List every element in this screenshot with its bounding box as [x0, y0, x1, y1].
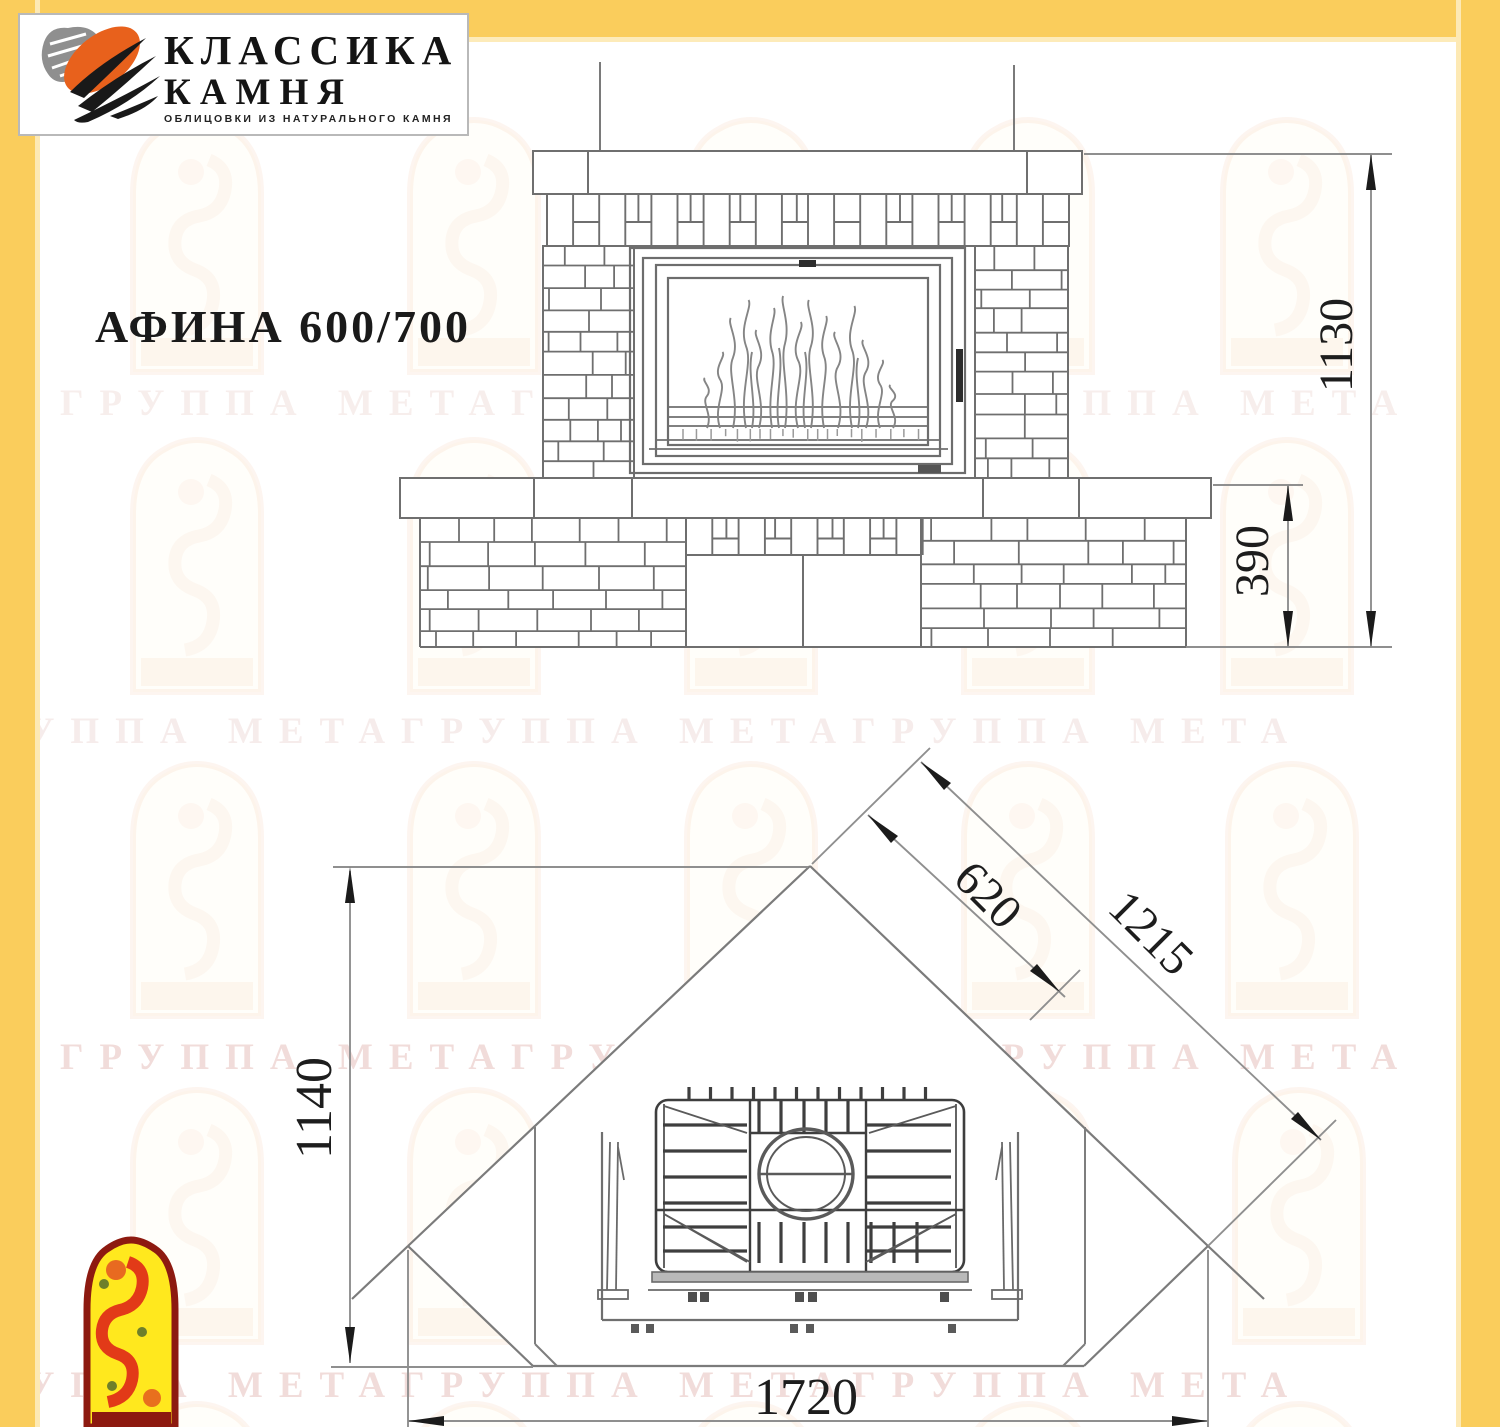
svg-text:КЛАССИКА: КЛАССИКА — [164, 27, 458, 73]
svg-text:1140: 1140 — [286, 1057, 343, 1159]
svg-text:АФИНА 600/700: АФИНА 600/700 — [95, 301, 471, 352]
svg-text:КАМНЯ: КАМНЯ — [164, 72, 353, 113]
svg-text:1720: 1720 — [754, 1369, 858, 1426]
svg-text:ГРУППА МЕТАГРУППА МЕТАГРУППА М: ГРУППА МЕТАГРУППА МЕТАГРУППА МЕТА — [0, 1365, 1303, 1406]
svg-text:390: 390 — [1226, 525, 1279, 597]
svg-text:1130: 1130 — [1310, 298, 1363, 392]
svg-text:ОБЛИЦОВКИ ИЗ НАТУРАЛЬНОГО КАМН: ОБЛИЦОВКИ ИЗ НАТУРАЛЬНОГО КАМНЯ — [164, 113, 453, 125]
svg-text:ГРУППА МЕТАГРУППА МЕТАГРУППА М: ГРУППА МЕТАГРУППА МЕТАГРУППА МЕТА — [0, 711, 1303, 752]
